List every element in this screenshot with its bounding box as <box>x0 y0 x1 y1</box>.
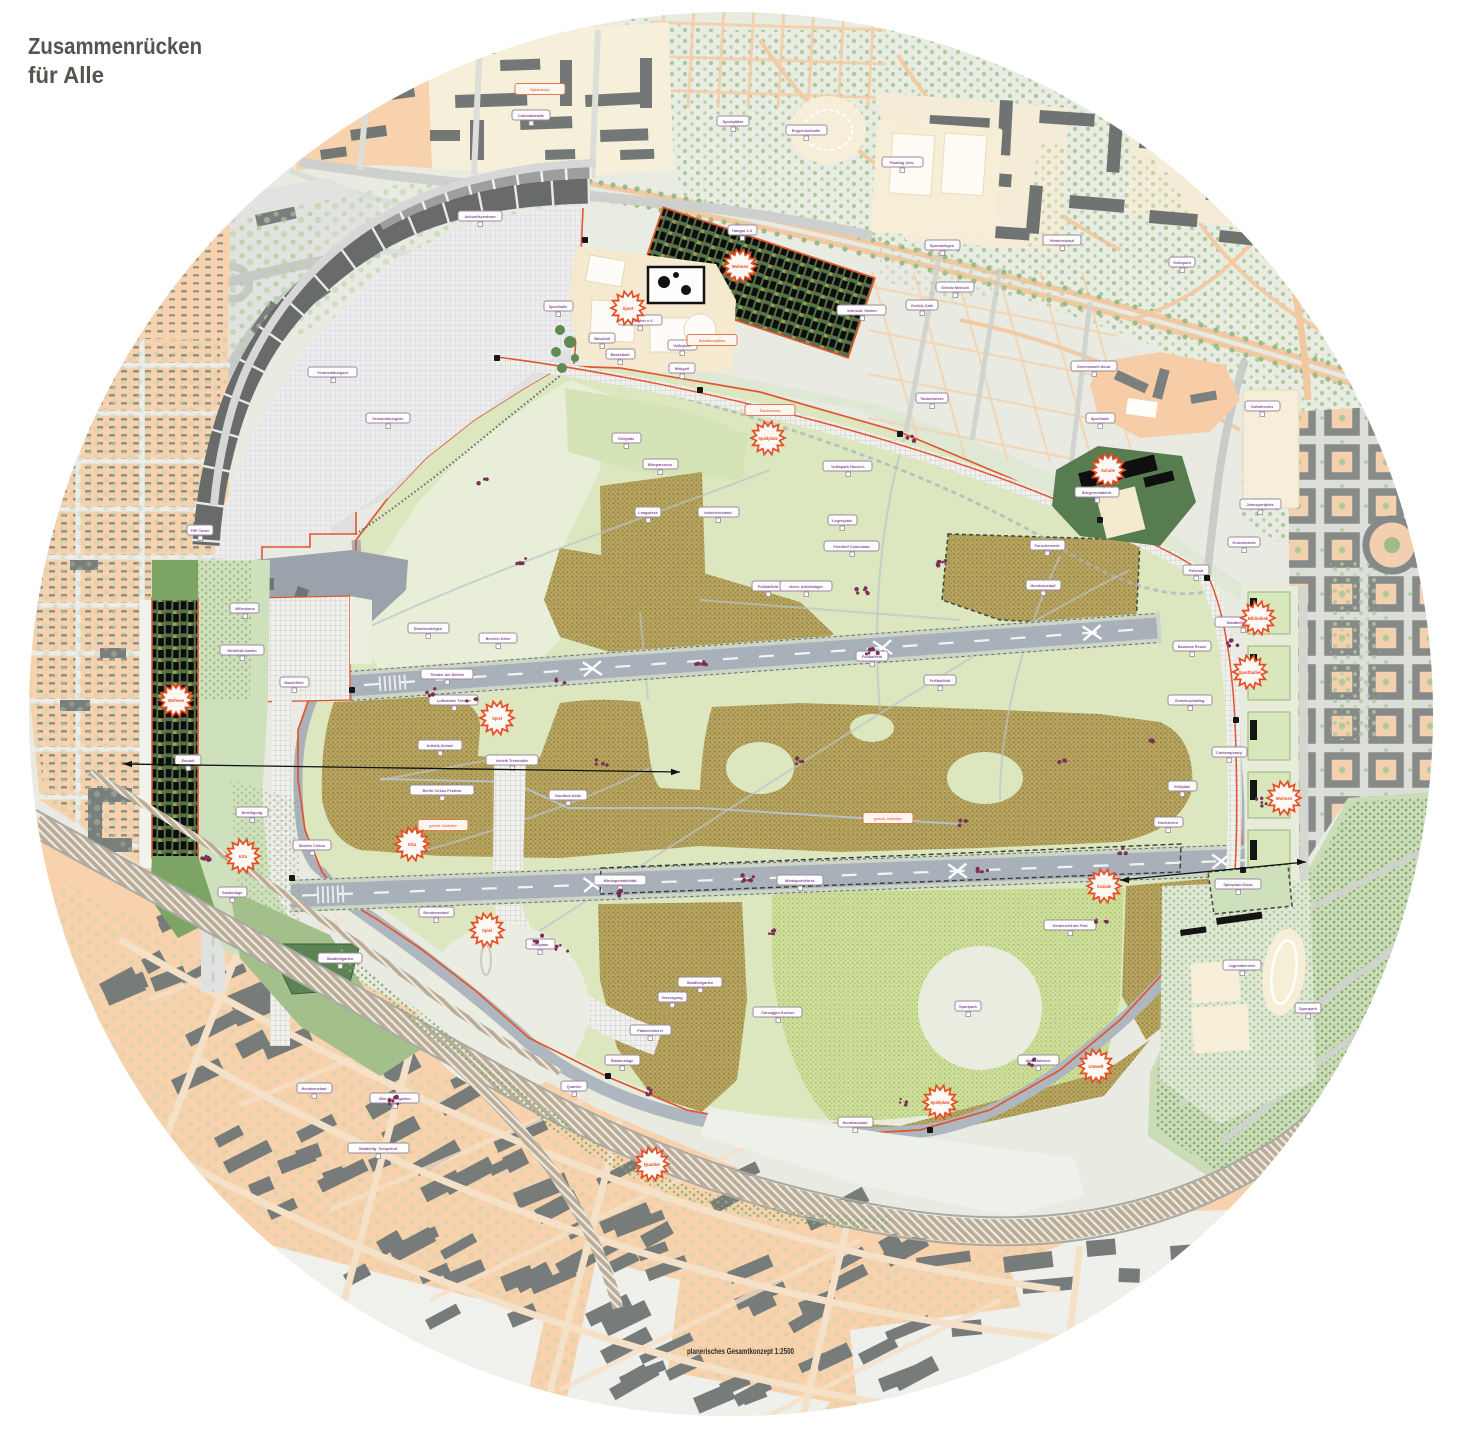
svg-text:Grundschule: Grundschule <box>1232 541 1255 545</box>
svg-text:planerisches Gesamtkonzept 1:: planerisches Gesamtkonzept 1:2500 <box>687 1347 794 1356</box>
svg-text:Sporthalle: Sporthalle <box>549 305 568 309</box>
svg-text:Drachensteigen: Drachensteigen <box>414 627 443 631</box>
svg-text:Basketball: Basketball <box>611 353 630 357</box>
svg-text:Platzmeisterei: Platzmeisterei <box>637 1029 663 1033</box>
svg-text:Soziale: Soziale <box>1097 884 1112 889</box>
svg-text:Spielplatz: Spielplatz <box>758 436 778 441</box>
svg-text:Interkult. Garten: Interkult. Garten <box>847 309 877 313</box>
svg-text:Westfeld-Garten: Westfeld-Garten <box>227 649 257 653</box>
svg-text:Schattenplätze: Schattenplätze <box>699 339 726 343</box>
svg-text:Beteiligung: Beteiligung <box>242 811 263 815</box>
svg-text:Langwiese: Langwiese <box>638 511 657 515</box>
svg-text:Versammlungsst.: Versammlungsst. <box>372 417 403 421</box>
svg-text:Spielplatz-Kiosk: Spielplatz-Kiosk <box>1223 883 1253 887</box>
svg-text:Forscherwerk: Forscherwerk <box>1035 544 1061 548</box>
svg-text:Gehölz Mensch: Gehölz Mensch <box>941 286 970 290</box>
svg-text:Contemporary: Contemporary <box>1216 751 1243 755</box>
svg-text:Veranstaltungsst.: Veranstaltungsst. <box>317 371 349 375</box>
svg-text:Spielplatz: Spielplatz <box>930 1100 950 1105</box>
svg-text:Bereich Kiten: Bereich Kiten <box>486 637 511 641</box>
svg-text:Wohnen: Wohnen <box>168 698 185 703</box>
svg-text:Hundeauslauf: Hundeauslauf <box>842 1121 868 1125</box>
svg-text:Kita: Kita <box>239 854 248 859</box>
svg-text:Windsportlehrst.: Windsportlehrst. <box>785 879 815 883</box>
svg-text:Taubenwiese: Taubenwiese <box>920 397 944 401</box>
svg-text:Fußballfeld: Fußballfeld <box>862 655 883 659</box>
svg-text:Sporthallen: Sporthallen <box>1238 670 1261 675</box>
svg-text:Stadtteilg. Tempelhof: Stadtteilg. Tempelhof <box>359 1147 398 1151</box>
svg-text:Fußballfeld: Fußballfeld <box>758 585 779 589</box>
svg-text:Volkspark: Volkspark <box>1173 261 1192 265</box>
svg-text:Regenrückhalte: Regenrückhalte <box>792 129 821 133</box>
svg-text:Sportpark: Sportpark <box>959 1005 978 1009</box>
svg-text:Spielwiese: Spielwiese <box>530 88 549 92</box>
svg-text:Gemeinschaftsg.: Gemeinschaftsg. <box>1175 699 1206 703</box>
svg-text:Verleih Tretmobile: Verleih Tretmobile <box>496 759 529 763</box>
svg-text:Sportpark: Sportpark <box>1299 1007 1318 1011</box>
svg-text:Milieuhaus: Milieuhaus <box>235 607 255 611</box>
svg-text:THF-Tower: THF-Tower <box>190 529 210 533</box>
svg-text:Rundenanlauf: Rundenanlauf <box>423 911 449 915</box>
svg-text:Versorgung: Versorgung <box>661 996 683 1000</box>
svg-text:ehem. Arbeitslager: ehem. Arbeitslager <box>789 585 824 589</box>
svg-text:Wohnen: Wohnen <box>732 264 749 269</box>
svg-text:Emuhit: Emuhit <box>182 759 196 763</box>
svg-text:Berlin Cirkus Festival: Berlin Cirkus Festival <box>423 789 462 793</box>
svg-text:Quartier: Quartier <box>644 1162 661 1167</box>
svg-text:Friedhof Columbiad.: Friedhof Columbiad. <box>834 545 871 549</box>
svg-text:Sportanlagen: Sportanlagen <box>930 244 955 248</box>
svg-text:Gehölz-Cafe: Gehölz-Cafe <box>911 304 933 308</box>
svg-text:Tischtennis: Tischtennis <box>759 409 780 413</box>
svg-text:Stadtteilgarten: Stadtteilgarten <box>327 957 354 961</box>
svg-text:Logenplatz: Logenplatz <box>832 519 852 523</box>
svg-text:Kita: Kita <box>408 842 417 847</box>
svg-text:Stadtteilgarten: Stadtteilgarten <box>687 981 714 985</box>
svg-text:Floating Univ.: Floating Univ. <box>890 161 915 165</box>
svg-text:Kinderwelt am Feld: Kinderwelt am Feld <box>1053 924 1088 928</box>
svg-text:Nordhub Aktiv: Nordhub Aktiv <box>555 794 582 798</box>
svg-text:gesch. Kiebitze: gesch. Kiebitze <box>429 824 457 828</box>
svg-text:Volkspark Hasenh.: Volkspark Hasenh. <box>831 465 865 469</box>
svg-text:Hundeauslauf: Hundeauslauf <box>1030 584 1056 588</box>
svg-text:Sportplätze: Sportplätze <box>723 120 744 124</box>
svg-text:Grillplatz: Grillplatz <box>1174 785 1190 789</box>
svg-text:Hochzeiten: Hochzeiten <box>1158 821 1179 825</box>
svg-text:Sport: Sport <box>623 306 635 311</box>
svg-text:Columbiahalle: Columbiahalle <box>518 114 544 118</box>
svg-text:Bibliothek: Bibliothek <box>1248 616 1269 621</box>
svg-text:Schule: Schule <box>1101 468 1115 473</box>
svg-text:Spiel: Spiel <box>492 716 502 721</box>
svg-text:Artistik-Schule: Artistik-Schule <box>427 744 454 748</box>
svg-text:Bauhaus Reuse: Bauhaus Reuse <box>1178 645 1207 649</box>
svg-text:Calisthenics: Calisthenics <box>1251 405 1273 409</box>
svg-text:Sporthalle: Sporthalle <box>1091 417 1110 421</box>
svg-text:Zusammenrücken: Zusammenrücken <box>28 33 202 59</box>
svg-text:Bikeparcours: Bikeparcours <box>648 463 672 467</box>
svg-text:Jahnsportplatz: Jahnsportplatz <box>1246 503 1273 507</box>
svg-text:Quartier: Quartier <box>567 1085 582 1089</box>
svg-text:Ankunftszentrum: Ankunftszentrum <box>464 215 496 219</box>
svg-text:Grillplatz: Grillplatz <box>532 943 548 947</box>
svg-text:Benthe Cirkus: Benthe Cirkus <box>299 844 325 848</box>
svg-text:Windsportaktivität: Windsportaktivität <box>603 879 637 883</box>
svg-text:gesch. Kiebitze: gesch. Kiebitze <box>874 817 902 821</box>
svg-text:für Alle: für Alle <box>28 62 104 88</box>
svg-text:Baseball: Baseball <box>594 337 610 341</box>
svg-text:Wohnen: Wohnen <box>1276 796 1293 801</box>
svg-text:Basketfeld: Basketfeld <box>284 681 304 685</box>
svg-text:Stationslage: Stationslage <box>611 1059 634 1063</box>
svg-text:Minigolf: Minigolf <box>675 367 690 371</box>
svg-text:Carvaggio Kochst.: Carvaggio Kochst. <box>761 1011 795 1015</box>
svg-text:Fußballfeld: Fußballfeld <box>930 679 951 683</box>
svg-text:Theater der Welten: Theater der Welten <box>430 673 465 677</box>
svg-text:Bürgerschafenh.: Bürgerschafenh. <box>1082 491 1112 495</box>
svg-text:Hindernislauf: Hindernislauf <box>1050 239 1075 243</box>
svg-text:Imkerlehrstand: Imkerlehrstand <box>704 511 732 515</box>
svg-text:Grillplatz: Grillplatz <box>618 437 634 441</box>
svg-text:Gastanlage: Gastanlage <box>222 891 242 895</box>
svg-text:Umwelt: Umwelt <box>1089 1064 1104 1069</box>
svg-text:Hundeauslauf: Hundeauslauf <box>301 1087 327 1091</box>
svg-text:Fahrrad: Fahrrad <box>1189 569 1204 573</box>
svg-text:Spiel: Spiel <box>482 928 492 933</box>
svg-text:Jugendbereich: Jugendbereich <box>1228 964 1256 968</box>
svg-text:Hangar 1-3: Hangar 1-3 <box>732 229 752 233</box>
svg-text:Gemeinwohl Neuk.: Gemeinwohl Neuk. <box>1077 365 1111 369</box>
